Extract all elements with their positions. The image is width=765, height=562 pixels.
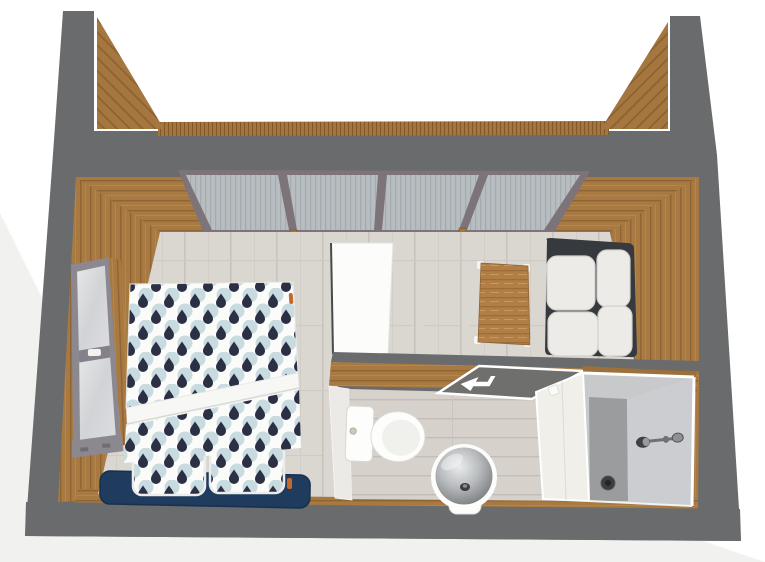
sofa-cushion-seat-back [547, 256, 595, 310]
shower-drain-center [605, 480, 611, 486]
shower[interactable] [536, 366, 697, 506]
sofa-cushion-backrest-top [597, 250, 630, 307]
sofa[interactable] [545, 238, 637, 357]
toilet-cistern [345, 406, 374, 462]
sofa-cushion-backrest-bottom [598, 306, 632, 356]
glass-pane-2 [287, 175, 378, 230]
bathroom [329, 352, 701, 514]
window-hinge-right [102, 444, 110, 448]
cabinet-top [331, 243, 393, 356]
sofa-cushion-seat-front [548, 312, 598, 356]
back-wall-top-plate [158, 121, 609, 136]
bed-tag-top [289, 293, 294, 304]
window-handle[interactable] [88, 349, 101, 356]
window-pane-top [76, 266, 110, 353]
room-render-canvas [0, 0, 765, 562]
double-bed[interactable] [100, 282, 311, 508]
shower-frame-right [692, 377, 694, 506]
flush-button[interactable] [350, 428, 357, 435]
coffee-table[interactable] [474, 261, 531, 347]
bed-tag-bottom [287, 478, 292, 489]
basin-drain-cap [463, 484, 467, 488]
window-hinge-left [80, 447, 88, 451]
room-3d-view [0, 0, 765, 562]
table-top [478, 263, 530, 345]
glass-wall[interactable] [178, 170, 590, 242]
window-pane-bottom [77, 355, 116, 442]
basin-bowl [436, 448, 493, 505]
white-cabinet[interactable] [331, 243, 393, 356]
